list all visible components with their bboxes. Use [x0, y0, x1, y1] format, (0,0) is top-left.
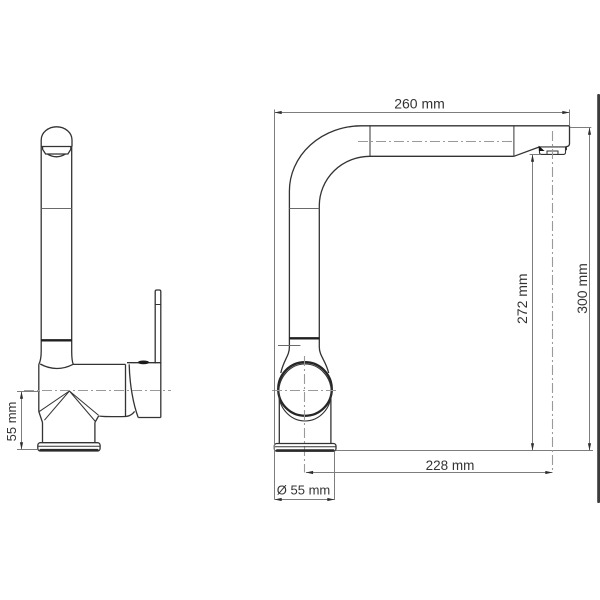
svg-text:260 mm: 260 mm — [394, 96, 445, 112]
svg-text:228 mm: 228 mm — [426, 458, 475, 473]
svg-text:300 mm: 300 mm — [574, 263, 590, 314]
svg-text:55 mm: 55 mm — [4, 402, 19, 442]
svg-text:Ø 55 mm: Ø 55 mm — [277, 483, 331, 498]
svg-text:272 mm: 272 mm — [514, 273, 530, 324]
